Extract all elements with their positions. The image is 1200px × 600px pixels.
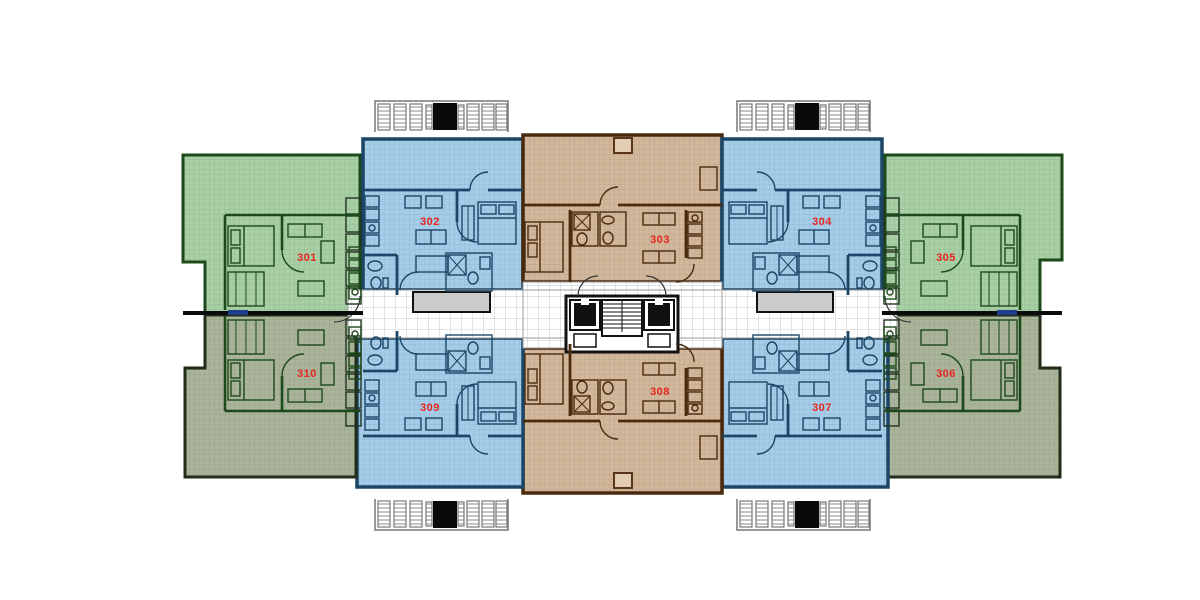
unit-310-label: 310 xyxy=(292,367,322,381)
balcony-louvers xyxy=(375,499,508,530)
staircase-icon xyxy=(602,300,642,336)
floor-plan-svg xyxy=(0,0,1200,600)
window-marker xyxy=(997,310,1017,315)
unit-308-label: 308 xyxy=(645,385,675,399)
unit-304-label: 304 xyxy=(807,215,837,229)
unit-306-label: 306 xyxy=(931,367,961,381)
unit-302-label: 302 xyxy=(415,215,445,229)
entry-mat xyxy=(413,292,490,312)
unit-303-label: 303 xyxy=(645,233,675,247)
entry-mat xyxy=(757,292,833,312)
balcony-louvers xyxy=(375,101,508,132)
floor-plan-canvas: 301 302 303 304 305 306 307 308 309 310 xyxy=(0,0,1200,600)
elevator-icon xyxy=(644,299,674,347)
unit-309-label: 309 xyxy=(415,401,445,415)
window-marker xyxy=(228,310,248,315)
balcony-louvers xyxy=(737,101,870,132)
unit-307-label: 307 xyxy=(807,401,837,415)
balcony-louvers xyxy=(737,499,870,530)
elevator-icon xyxy=(570,299,600,347)
unit-301-label: 301 xyxy=(292,251,322,265)
unit-305-label: 305 xyxy=(931,251,961,265)
